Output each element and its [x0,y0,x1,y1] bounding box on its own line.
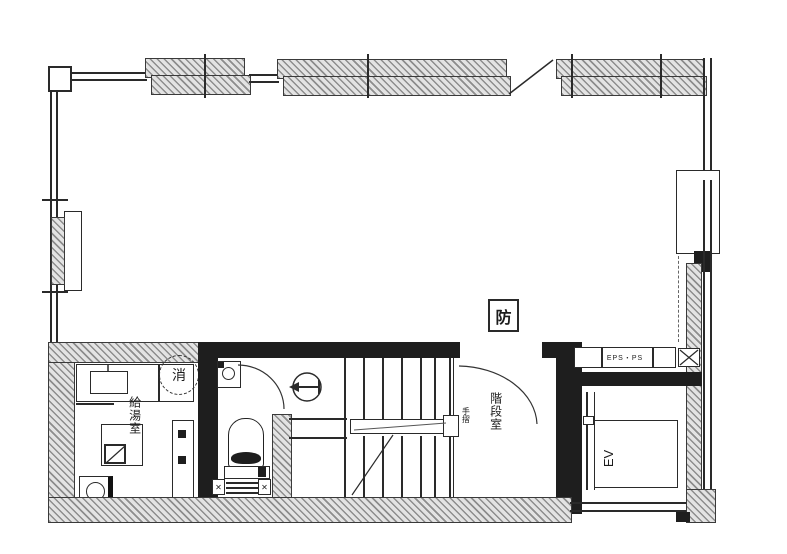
pipe-shaft-label: EPS・PS [576,349,674,366]
elevator-label: EV [602,449,617,466]
bottom-right-hatch-block [686,489,716,523]
shaft-cross-box [678,348,700,367]
floor-plan: 防 給湯室 消 ✕ ✕ 手摺 階段 [0,0,787,554]
right-wall-hatch-band [686,263,702,523]
louver-line-2 [226,487,259,489]
fire-extinguisher-label: 消 [172,365,186,385]
stair-tread-u3 [401,358,403,420]
toilet-cistern-mark [258,467,266,477]
vent-cross-glyph-left: ✕ [215,483,222,492]
top-wall-hatch-b-lower [283,76,511,96]
top-wall-tick-3 [571,54,573,98]
toilet-seat [231,452,261,464]
wc-door-swing-arc [238,365,284,409]
stair-landing-edge [344,358,346,497]
louver-line-1 [226,482,259,484]
landing-line-lower [289,437,347,439]
stair-tread-l3 [401,436,403,497]
handrail-newel [443,415,459,437]
stair-handrail [350,419,451,434]
stair-direction-arrow-icon [289,373,321,401]
top-left-corner-post [48,66,72,92]
fire-shutter-marker: 防 [488,299,519,332]
kitchenette-room-label: 給湯室 [128,396,141,466]
louver-line-3 [226,492,259,494]
bottom-wall-hatch [48,497,572,523]
top-wall-hatch-a-lower [151,75,251,95]
shaft-mark-2 [178,456,186,464]
left-wall-tick-upper [42,199,68,201]
ev-door-line-1 [586,392,588,490]
right-wall-line-lower [703,180,712,523]
elevator-label-wrap: EV [598,444,620,472]
counter-shelf-line [76,403,114,405]
stair-tread-u1 [363,358,365,420]
top-window-line-left [71,72,147,81]
shaft-mark-1 [178,430,186,438]
stair-tread-u5 [434,358,436,420]
stair-tread-l5 [434,436,436,497]
right-wall-line-upper [703,58,712,180]
top-wall-break-diagonal [509,60,553,94]
top-wall-hatch-c-lower [561,76,707,96]
ev-door-tick [583,416,594,425]
stair-tread-l4 [420,436,422,497]
fire-extinguisher-symbol: 消 [159,355,199,395]
top-wall-tick-1 [204,54,206,98]
stair-tread-u2 [382,358,384,420]
stair-tread-l2 [382,436,384,497]
vent-cross-left-icon: ✕ [212,479,225,495]
stair-break-diagonal [352,435,393,495]
right-wall-recess-panel [676,170,720,254]
handwash-tap [218,362,224,368]
kitchenette-left-wall [48,342,75,523]
top-wall-tick-2 [367,54,369,98]
stairwell-room-label: 階段室 [489,392,502,458]
top-window-line-mid [249,74,279,83]
appliance-inner-box [104,444,126,464]
ev-top-wall [563,372,702,386]
core-top-wall-left [198,342,460,358]
wc-right-wall-hatch [272,414,292,500]
counter-sink [90,371,128,394]
vent-cross-glyph-right: ✕ [261,483,268,492]
stair-tread-u4 [420,358,422,420]
bottom-right-dark-mark [676,512,690,522]
handrail-label: 手摺 [461,407,469,439]
vent-cross-right-icon: ✕ [258,479,271,495]
landing-line-upper [289,418,347,420]
stair-tread-l1 [363,436,365,497]
left-window-frame [64,211,82,291]
handwash-bowl [222,367,235,380]
fire-shutter-label: 防 [495,304,511,328]
left-wall-tick-lower [42,291,68,293]
right-wall-dashed-line [678,256,679,342]
top-wall-tick-4 [660,54,662,98]
left-window-hatch [51,217,65,285]
